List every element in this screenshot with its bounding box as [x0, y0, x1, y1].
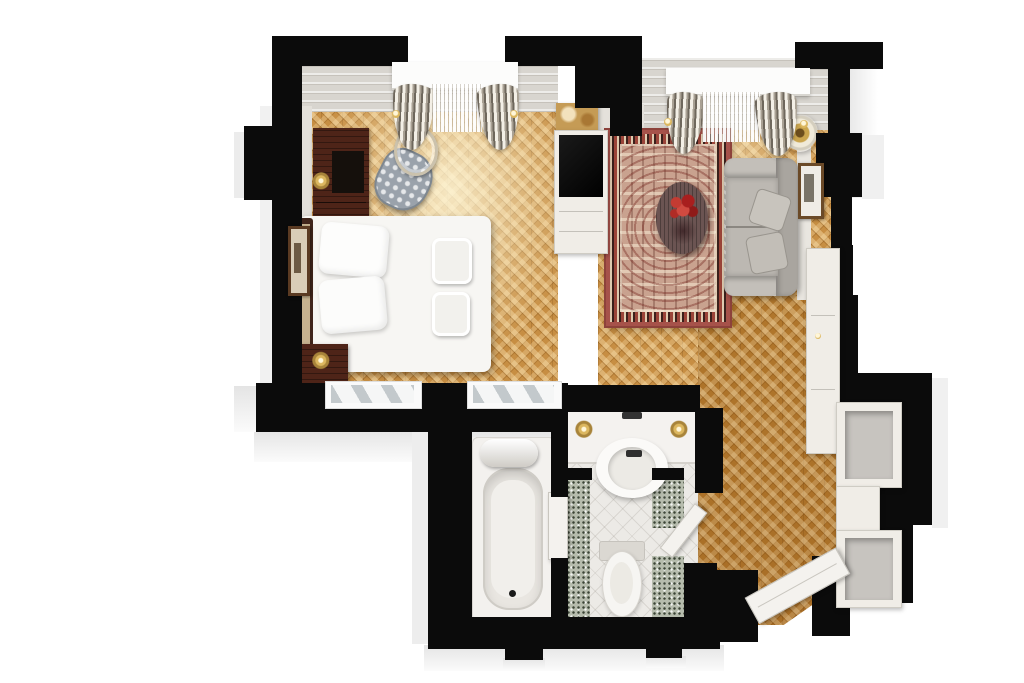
desk-shelf-seam	[316, 202, 366, 203]
mosaic-strip-left	[566, 470, 590, 618]
living-picture-frame	[798, 163, 824, 219]
living-sheer-curtain	[702, 92, 760, 142]
bathtub-basin	[491, 480, 535, 598]
sofa	[724, 158, 798, 296]
console-drawer-seam-2	[559, 231, 603, 232]
interior-window-2	[467, 381, 562, 409]
toilet-seat	[610, 562, 633, 604]
wall-sconce-right	[669, 418, 691, 446]
buttress-2	[646, 644, 682, 658]
console-drawer-seam-1	[559, 211, 603, 212]
bedroom-picture-art	[294, 243, 301, 273]
open-shelf-unit-upper	[836, 402, 902, 488]
wardrobe-cabinet	[806, 248, 840, 454]
wall-living-west-top	[610, 66, 642, 136]
bathroom-connecting-door	[548, 492, 568, 560]
exterior-face-east-3	[932, 378, 948, 528]
bedroom-picture-frame	[288, 226, 310, 296]
tv	[559, 135, 603, 197]
exterior-face-bump	[234, 132, 244, 198]
rolled-towel	[480, 439, 538, 467]
bedroom-tieback-right	[510, 110, 518, 118]
bedroom-tieback-left	[392, 110, 400, 118]
vanity-stub-left	[566, 468, 592, 480]
shelf-lower-inset	[845, 538, 893, 600]
living-tieback-right	[800, 120, 808, 128]
folded-throw-1	[432, 238, 472, 284]
interior-window-2-glass	[473, 385, 554, 403]
mosaic-strip-right-lower	[652, 556, 684, 618]
nightstand-lamp	[310, 350, 334, 376]
bed-pillow-2	[318, 275, 388, 335]
wall-bath-north	[560, 385, 700, 412]
bedroom-sheer-curtain	[432, 84, 482, 132]
wardrobe-panel-seam-2	[811, 389, 835, 390]
interior-window-1	[325, 381, 422, 409]
sink-faucet	[626, 450, 642, 457]
wall-west-bump	[244, 126, 274, 200]
wardrobe-panel-seam-1	[811, 315, 835, 316]
wall-east-stem-1	[828, 64, 850, 136]
exterior-face-bath-left	[412, 412, 428, 644]
bathtub-drain	[509, 590, 516, 597]
folded-throw-2	[432, 292, 470, 336]
shelf-mid-section	[836, 486, 880, 532]
interior-window-1-glass	[331, 385, 414, 403]
wall-bath-west	[428, 408, 472, 648]
exterior-face-east-2	[862, 135, 884, 199]
wall-faucet	[622, 412, 642, 419]
buttress-1	[505, 646, 543, 660]
desk-top-inset	[332, 151, 364, 193]
wall-bath-east-upper	[695, 408, 723, 493]
desk-lamp	[312, 172, 332, 194]
rose-bouquet	[666, 192, 700, 222]
wall-bath-divider-upper	[551, 405, 568, 497]
wall-sconce-left	[574, 418, 596, 446]
sofa-pillow-2	[745, 231, 790, 276]
sofa-arm-top	[724, 158, 780, 178]
wardrobe-handle	[815, 333, 821, 339]
tv-console	[554, 130, 608, 254]
living-picture-art	[804, 174, 814, 202]
shelf-upper-inset	[845, 411, 893, 479]
floorplan-render	[0, 0, 1024, 683]
bed-pillow-1	[318, 221, 390, 279]
toilet-bowl	[602, 551, 642, 617]
vanity-stub-right	[652, 468, 684, 480]
living-tieback-left	[664, 118, 672, 126]
sofa-arm-bottom	[724, 276, 780, 296]
